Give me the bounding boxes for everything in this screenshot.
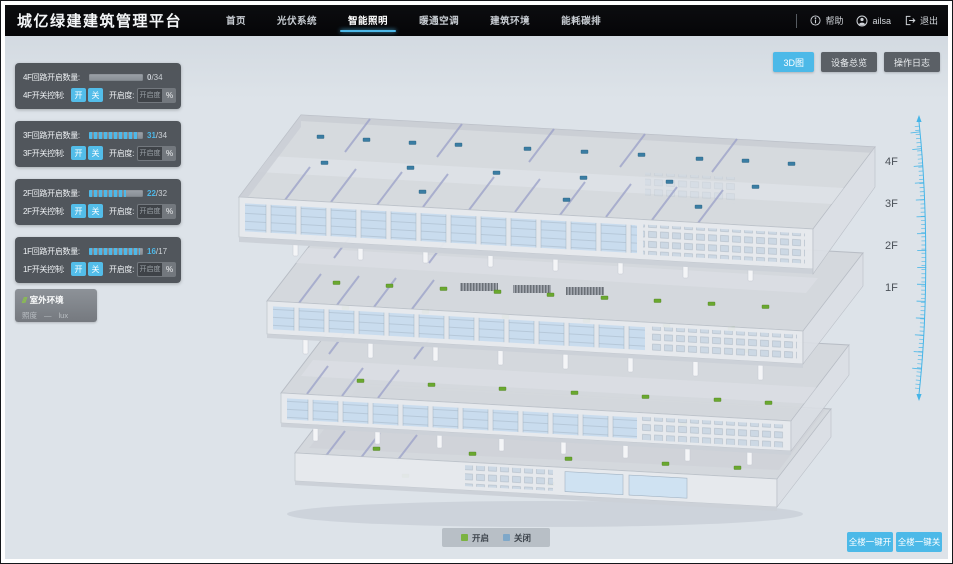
percent-button[interactable]: % (163, 146, 176, 161)
dimming-label: 开启度: (109, 90, 137, 101)
main-menu: 首页 光伏系统 智能照明 暖通空调 建筑环境 能耗碳排 (224, 9, 603, 33)
nav-item-energy-carbon[interactable]: 能耗碳排 (559, 9, 603, 33)
floor-label-4f[interactable]: 4F (885, 156, 905, 168)
circuit-count-label: 4F回路开启数量: (23, 72, 89, 83)
circuit-count-value: 31/34 (147, 131, 167, 140)
floor-panel-2f: 2F回路开启数量: 22/32 2F开关控制: 开 关 开启度: % (15, 179, 181, 225)
floor-panel-4f: 4F回路开启数量: 0/34 4F开关控制: 开 关 开启度: % (15, 63, 181, 109)
user-name: ailsa (872, 16, 891, 26)
legend-off-label: 关闭 (514, 532, 531, 544)
help-button[interactable]: 帮助 (810, 14, 843, 27)
legend-on-item: 开启 (461, 532, 489, 544)
circuit-progress-bar (89, 74, 143, 81)
circuit-count-value: 22/32 (147, 189, 167, 198)
view-3d-button[interactable]: 3D图 (773, 52, 814, 72)
illuminance-unit: lux (59, 311, 69, 320)
circuit-count-value: 0/34 (147, 73, 163, 82)
nav-item-building-env[interactable]: 建筑环境 (488, 9, 532, 33)
switch-control-label: 1F开关控制: (23, 264, 71, 275)
circuit-count-label: 1F回路开启数量: (23, 246, 89, 257)
switch-on-button[interactable]: 开 (71, 88, 86, 102)
floor-label-3f[interactable]: 3F (885, 198, 905, 210)
legend-off-swatch (503, 534, 510, 541)
illuminance-label: 照度 (22, 310, 37, 321)
circuit-count-label: 2F回路开启数量: (23, 188, 89, 199)
percent-button[interactable]: % (163, 262, 176, 277)
floor-panel-1f: 1F回路开启数量: 16/17 1F开关控制: 开 关 开启度: % (15, 237, 181, 283)
help-label: 帮助 (825, 14, 843, 27)
nav-item-smart-lighting[interactable]: 智能照明 (346, 9, 390, 33)
nav-item-pv-system[interactable]: 光伏系统 (275, 9, 319, 33)
circuit-count-label: 3F回路开启数量: (23, 130, 89, 141)
floor-scale-ruler (898, 106, 938, 406)
operation-log-button[interactable]: 操作日志 (884, 52, 940, 72)
switch-off-button[interactable]: 关 (88, 146, 103, 160)
legend-on-swatch (461, 534, 468, 541)
dimming-label: 开启度: (109, 264, 137, 275)
app-title: 城亿绿建建筑管理平台 (17, 10, 182, 31)
switch-control-label: 4F开关控制: (23, 90, 71, 101)
switch-off-button[interactable]: 关 (88, 204, 103, 218)
dimming-input[interactable] (137, 146, 163, 161)
switch-off-button[interactable]: 关 (88, 88, 103, 102)
circuit-count-value: 16/17 (147, 247, 167, 256)
device-overview-button[interactable]: 设备总览 (821, 52, 877, 72)
switch-on-button[interactable]: 开 (71, 146, 86, 160)
nav-right-cluster: 帮助 ailsa 退出 (796, 14, 938, 28)
circuit-progress-bar (89, 132, 143, 139)
switch-control-label: 2F开关控制: (23, 206, 71, 217)
all-on-button[interactable]: 全楼一键开 (847, 532, 893, 552)
outdoor-env-panel: /// 室外环境 照度 — lux (15, 289, 97, 322)
top-navbar: 城亿绿建建筑管理平台 首页 光伏系统 智能照明 暖通空调 建筑环境 能耗碳排 帮… (5, 5, 948, 36)
main-view: 4F回路开启数量: 0/34 4F开关控制: 开 关 开启度: % 3F回路开启… (5, 36, 948, 559)
user-avatar-icon (856, 15, 868, 27)
dimming-input[interactable] (137, 88, 163, 103)
nav-divider (796, 14, 797, 28)
building-3d-view[interactable] (5, 36, 950, 561)
legend-off-item: 关闭 (503, 532, 531, 544)
view-switcher: 3D图 设备总览 操作日志 (773, 52, 940, 72)
dimming-label: 开启度: (109, 206, 137, 217)
nav-item-home[interactable]: 首页 (224, 9, 248, 33)
floor-label-1f[interactable]: 1F (885, 282, 905, 294)
logout-icon (904, 15, 916, 26)
switch-off-button[interactable]: 关 (88, 262, 103, 276)
circuit-progress-bar (89, 190, 143, 197)
env-slashes-icon: /// (22, 296, 26, 305)
switch-on-button[interactable]: 开 (71, 204, 86, 218)
floor-label-2f[interactable]: 2F (885, 240, 905, 252)
circuit-progress-bar (89, 248, 143, 255)
logout-label: 退出 (920, 14, 938, 27)
dimming-input[interactable] (137, 204, 163, 219)
app-window: 城亿绿建建筑管理平台 首页 光伏系统 智能照明 暖通空调 建筑环境 能耗碳排 帮… (0, 0, 953, 564)
outdoor-env-title: 室外环境 (30, 294, 64, 306)
status-legend: 开启 关闭 (442, 528, 550, 547)
nav-item-hvac[interactable]: 暖通空调 (417, 9, 461, 33)
user-menu[interactable]: ailsa (856, 15, 891, 27)
percent-button[interactable]: % (163, 204, 176, 219)
legend-on-label: 开启 (472, 532, 489, 544)
illuminance-value: — (44, 311, 52, 320)
all-off-button[interactable]: 全楼一键关 (896, 532, 942, 552)
dimming-label: 开启度: (109, 148, 137, 159)
dimming-input[interactable] (137, 262, 163, 277)
info-icon (810, 15, 821, 26)
switch-on-button[interactable]: 开 (71, 262, 86, 276)
bulk-controls: 全楼一键开 全楼一键关 (847, 532, 942, 552)
floor-panel-3f: 3F回路开启数量: 31/34 3F开关控制: 开 关 开启度: % (15, 121, 181, 167)
switch-control-label: 3F开关控制: (23, 148, 71, 159)
percent-button[interactable]: % (163, 88, 176, 103)
logout-button[interactable]: 退出 (904, 14, 938, 27)
